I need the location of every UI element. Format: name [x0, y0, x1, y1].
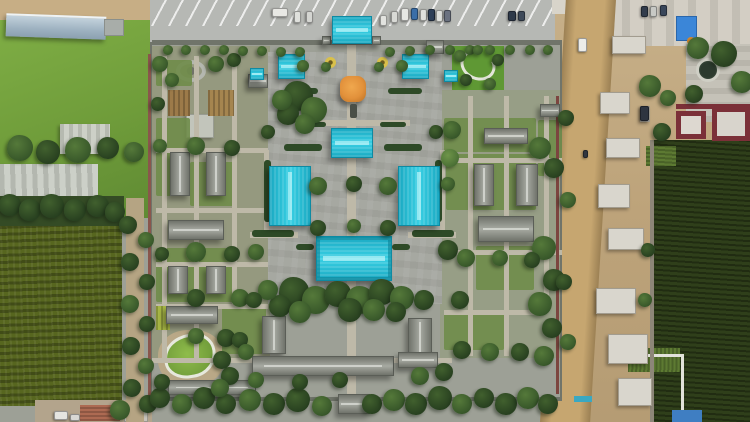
- red-tile-roof: [80, 405, 120, 421]
- parking-stripes: [150, 0, 562, 26]
- teal-fence: [574, 396, 592, 402]
- light-crop-patch: [646, 146, 676, 166]
- concrete-rooftops-topright: [600, 0, 750, 46]
- white-farm-roof: [60, 124, 110, 154]
- round-pond: [696, 58, 720, 82]
- maroon-courtyard: [712, 107, 750, 141]
- white-farm-roof: [0, 164, 98, 196]
- east-garden-courtyard: [440, 90, 560, 358]
- light-shed-roof: [186, 114, 214, 138]
- aerial-photo: Aerial drone view of a walled Chinese te…: [0, 0, 750, 422]
- west-garden-courtyard: [152, 46, 270, 358]
- maroon-courtyard: [676, 111, 706, 139]
- west-lane: [126, 198, 144, 422]
- yellow-parasol: [325, 57, 336, 68]
- orchard-rows: [0, 226, 122, 406]
- incense-burner: [350, 104, 357, 118]
- maroon-walled-building: [676, 104, 750, 142]
- light-crop-patch: [628, 348, 680, 372]
- greenhouse-annex-roof: [104, 19, 124, 36]
- yellow-parasol: [377, 57, 388, 68]
- excavator: [687, 37, 695, 45]
- white-pipe: [644, 354, 684, 357]
- orange-pavilion-roof: [340, 76, 366, 102]
- long-greenhouse-roof: [6, 13, 107, 39]
- blue-tarp: [672, 410, 702, 422]
- round-gazebo: [176, 60, 206, 82]
- dark-crop-field: [654, 140, 750, 422]
- tree-line-strip: [0, 196, 124, 230]
